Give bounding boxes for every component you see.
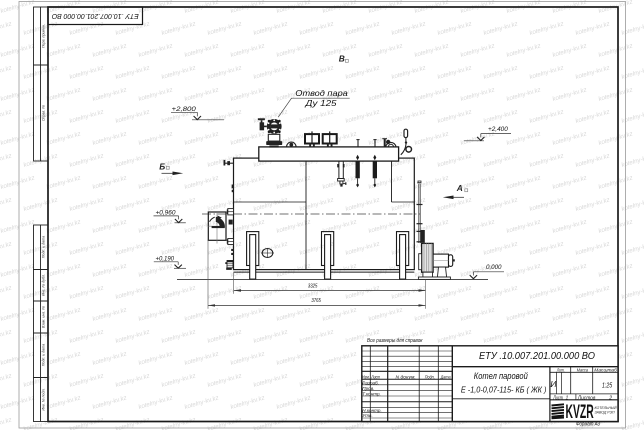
svg-text:Б: Б [159, 162, 165, 172]
svg-text:В: В [339, 54, 345, 64]
svg-text:Разраб.: Разраб. [362, 380, 379, 385]
svg-text:Инв. № дубл.: Инв. № дубл. [42, 274, 46, 296]
svg-text:Лист: Лист [552, 395, 562, 401]
svg-text:Изм.: Изм. [362, 375, 370, 380]
svg-text:Отвод пара: Отвод пара [295, 89, 348, 98]
svg-text:Дата: Дата [440, 375, 451, 380]
svg-text:Н.контр.: Н.контр. [362, 408, 381, 413]
svg-text:Е -1,0-0,07-115- КБ ( ЖК ): Е -1,0-0,07-115- КБ ( ЖК ) [461, 384, 547, 394]
svg-text:Все размеры для справок: Все размеры для справок [367, 338, 423, 344]
svg-text:2: 2 [608, 395, 612, 401]
svg-text:КОТЕЛЬНЫЙ: КОТЕЛЬНЫЙ [595, 406, 618, 410]
svg-text:Утв.: Утв. [362, 413, 372, 418]
svg-text:0,000: 0,000 [486, 264, 502, 271]
svg-text:Пров.: Пров. [362, 386, 374, 391]
svg-text:N докум.: N докум. [396, 375, 416, 380]
svg-text:3325: 3325 [308, 283, 318, 289]
svg-text:Подп.: Подп. [425, 375, 435, 380]
svg-text:+2,400: +2,400 [488, 126, 508, 133]
svg-text:KVZR: KVZR [566, 401, 594, 423]
svg-text:1:25: 1:25 [602, 380, 613, 389]
svg-text:Масштаб: Масштаб [594, 367, 617, 373]
svg-text:+0,190: +0,190 [156, 255, 175, 262]
svg-text:ЕТУ .10.007.201.00.000 ВО: ЕТУ .10.007.201.00.000 ВО [51, 12, 138, 21]
svg-text:+2,800: +2,800 [172, 106, 197, 113]
svg-text:Взам. инв. №: Взам. инв. № [42, 306, 46, 328]
svg-text:ЕТУ .10.007.201.00.000 ВО: ЕТУ .10.007.201.00.000 ВО [479, 351, 595, 362]
svg-text:ЗАВОД РЭП: ЗАВОД РЭП [595, 411, 616, 415]
svg-text:И: И [550, 379, 557, 389]
svg-text:Масса: Масса [577, 367, 588, 373]
svg-text:Перв. примен.: Перв. примен. [42, 24, 46, 48]
svg-text:Котел паровой: Котел паровой [474, 371, 528, 381]
svg-text:Лист: Лист [370, 375, 380, 380]
svg-text:А: А [456, 183, 463, 193]
svg-text:3765: 3765 [311, 298, 321, 304]
svg-text:Формат А3: Формат А3 [576, 421, 600, 427]
svg-text:Т.контр.: Т.контр. [362, 392, 381, 397]
svg-text:Подп. и дата: Подп. и дата [42, 344, 46, 367]
svg-text:Подп. и дата: Подп. и дата [42, 236, 46, 259]
svg-text:Справ. №: Справ. № [42, 105, 46, 121]
svg-text:Инв. № подл.: Инв. № подл. [42, 388, 46, 410]
svg-text:Ду 125: Ду 125 [304, 99, 337, 108]
svg-text:Лит.: Лит. [556, 367, 564, 373]
